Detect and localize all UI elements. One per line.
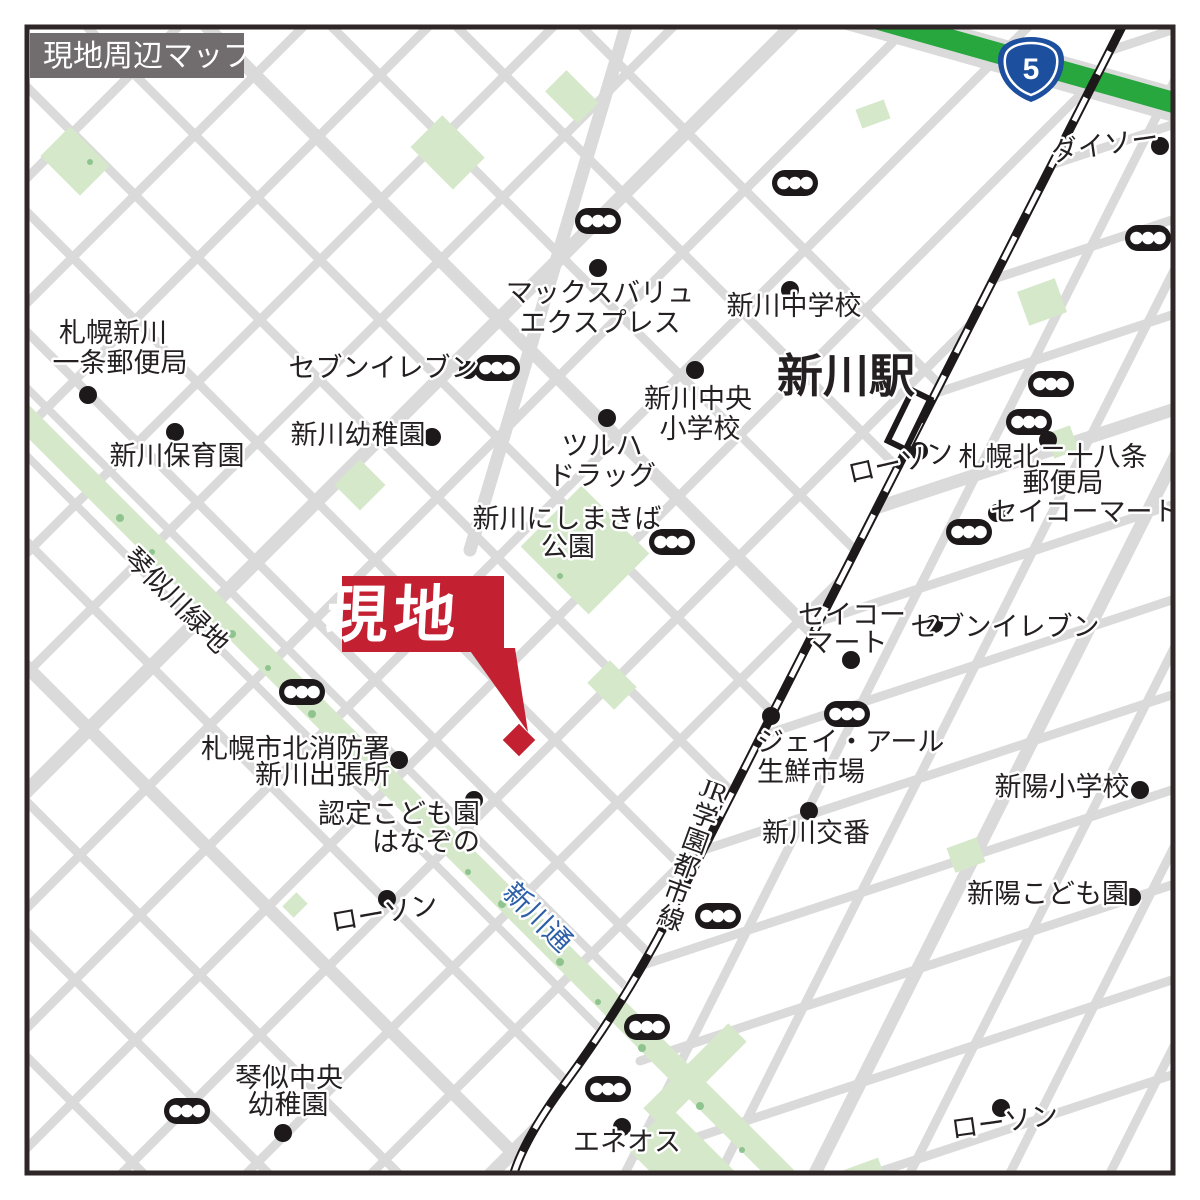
poi-label-shinyo-es: 新陽小学校 bbox=[995, 772, 1130, 802]
poi-label-nursery: 新川保育園 bbox=[110, 441, 245, 471]
poi-label-post-ne-2: 郵便局 bbox=[1023, 468, 1104, 498]
route-5-shield: 5 bbox=[999, 38, 1063, 101]
poi-label-maxvalu-2: エクスプレス bbox=[519, 308, 680, 338]
poi-label-seicomart-center: セイコー bbox=[798, 600, 906, 630]
poi-label-post-west-2: 一条郵便局 bbox=[53, 348, 188, 378]
poi-label-seven-west: セブンイレブン bbox=[289, 353, 478, 383]
street-grid-east bbox=[615, 0, 1200, 1200]
poi-label-koban: 新川交番 bbox=[762, 818, 870, 848]
poi-label-hanazono-2: はなぞの bbox=[372, 827, 480, 857]
poi-label-shinkawa-jhs: 新川中学校 bbox=[727, 291, 862, 321]
poi-label-kotoni-chuo-2: 幼稚園 bbox=[248, 1090, 329, 1120]
poi-label-eneos: エネオス bbox=[573, 1127, 681, 1157]
poi-label-kotoni-chuo: 琴似中央 bbox=[235, 1063, 343, 1093]
route-number: 5 bbox=[1023, 53, 1040, 86]
map-canvas: ダイソー マックスバリュ エクスプレス 新川中学校 セブンイレブン 新川幼稚園 … bbox=[0, 0, 1200, 1200]
map-title: 現地周辺マップ bbox=[43, 40, 253, 73]
poi-label-jr-market: ジェイ・アール bbox=[757, 727, 944, 757]
poi-label-shinyo-kids: 新陽こども園 bbox=[967, 879, 1129, 909]
poi-label-jr-market-2: 生鮮市場 bbox=[757, 757, 865, 787]
station-name: 新川駅 bbox=[777, 351, 915, 402]
poi-label-chuo-es-2: 小学校 bbox=[660, 414, 741, 444]
site-area-map: ダイソー マックスバリュ エクスプレス 新川中学校 セブンイレブン 新川幼稚園 … bbox=[0, 0, 1200, 1200]
poi-label-tsuruha: ツルハ bbox=[562, 431, 643, 461]
poi-label-nishimakiba: 新川にしまきば bbox=[473, 504, 662, 534]
poi-label-seven-east: セブンイレブン bbox=[911, 612, 1100, 642]
poi-label-fire-dept-2: 新川出張所 bbox=[255, 760, 390, 790]
poi-label-seicomart-center-2: マート bbox=[807, 628, 888, 658]
poi-label-tsuruha-2: ドラッグ bbox=[548, 461, 656, 491]
site-label: 現地 bbox=[324, 581, 464, 650]
poi-label-lawson-se: ローソン bbox=[949, 1100, 1060, 1145]
poi-label-post-west: 札幌新川 bbox=[59, 318, 167, 348]
poi-label-chuo-es: 新川中央 bbox=[644, 384, 752, 414]
poi-label-seicomart-ne: セイコーマート bbox=[991, 497, 1180, 527]
poi-label-shinkawa-kindergarten: 新川幼稚園 bbox=[291, 420, 426, 450]
poi-label-nishimakiba-2: 公園 bbox=[541, 532, 595, 562]
site-marker-icon bbox=[503, 724, 536, 757]
poi-label-maxvalu: マックスバリュ bbox=[506, 278, 694, 308]
poi-label-hanazono: 認定こども園 bbox=[318, 799, 480, 829]
